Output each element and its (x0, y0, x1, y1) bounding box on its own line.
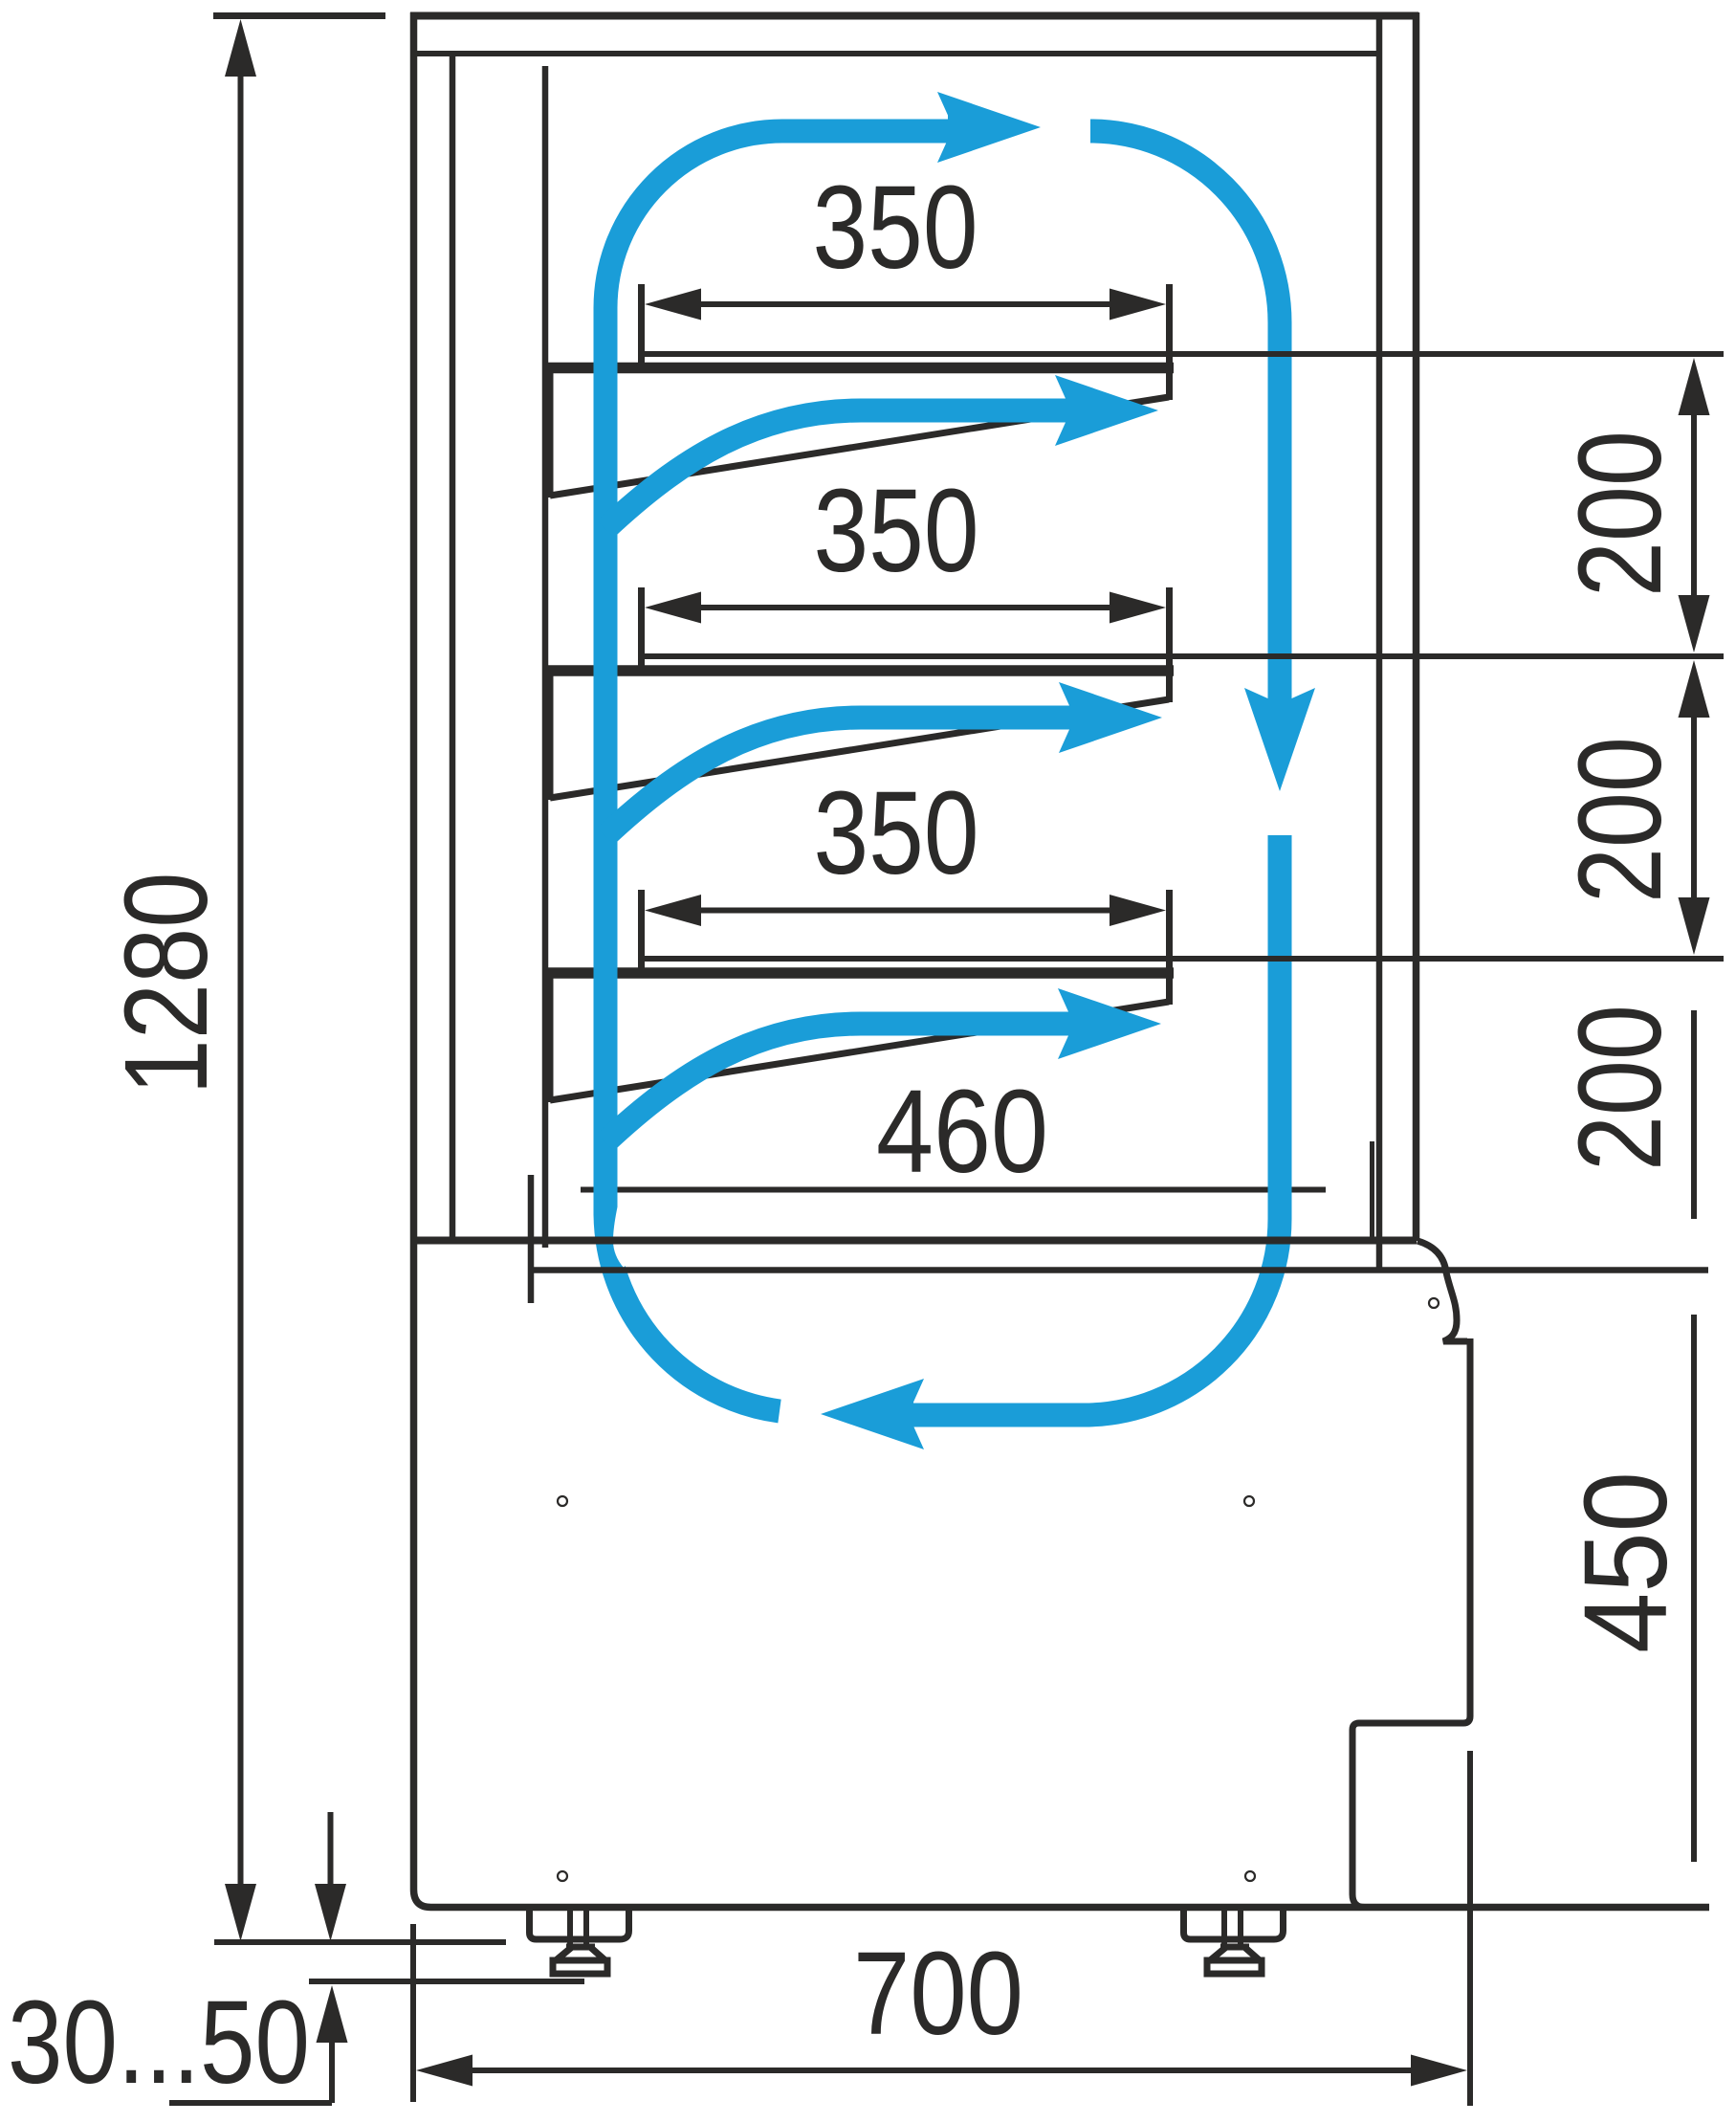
svg-text:200: 200 (1555, 1005, 1686, 1171)
svg-text:350: 350 (814, 768, 979, 899)
svg-text:200: 200 (1555, 431, 1686, 597)
svg-text:450: 450 (1561, 1471, 1692, 1653)
svg-text:1280: 1280 (101, 873, 232, 1095)
svg-text:200: 200 (1555, 737, 1686, 903)
svg-text:460: 460 (876, 1067, 1048, 1198)
svg-text:700: 700 (853, 1929, 1023, 2060)
svg-text:30...50: 30...50 (8, 1978, 310, 2109)
svg-text:350: 350 (813, 163, 978, 294)
svg-text:350: 350 (814, 466, 979, 597)
